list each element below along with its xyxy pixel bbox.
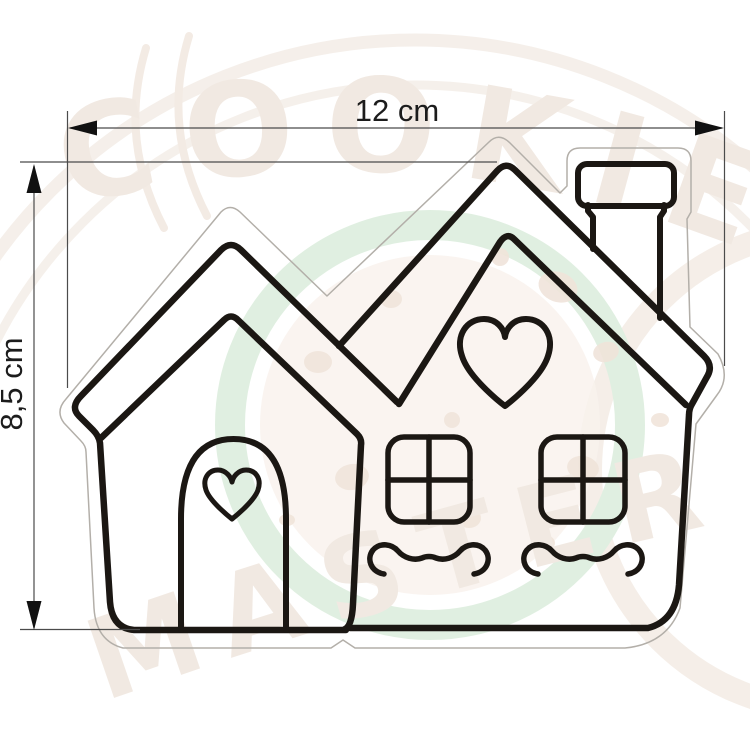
product-image: COOKIE MASTER <box>0 0 750 750</box>
height-arrow-top-icon <box>27 164 42 193</box>
cookie-cutter-diagram: COOKIE MASTER <box>0 0 750 750</box>
height-label: 8,5 cm <box>0 337 29 430</box>
height-arrow-bottom-icon <box>27 601 42 630</box>
width-label: 12 cm <box>355 93 439 128</box>
